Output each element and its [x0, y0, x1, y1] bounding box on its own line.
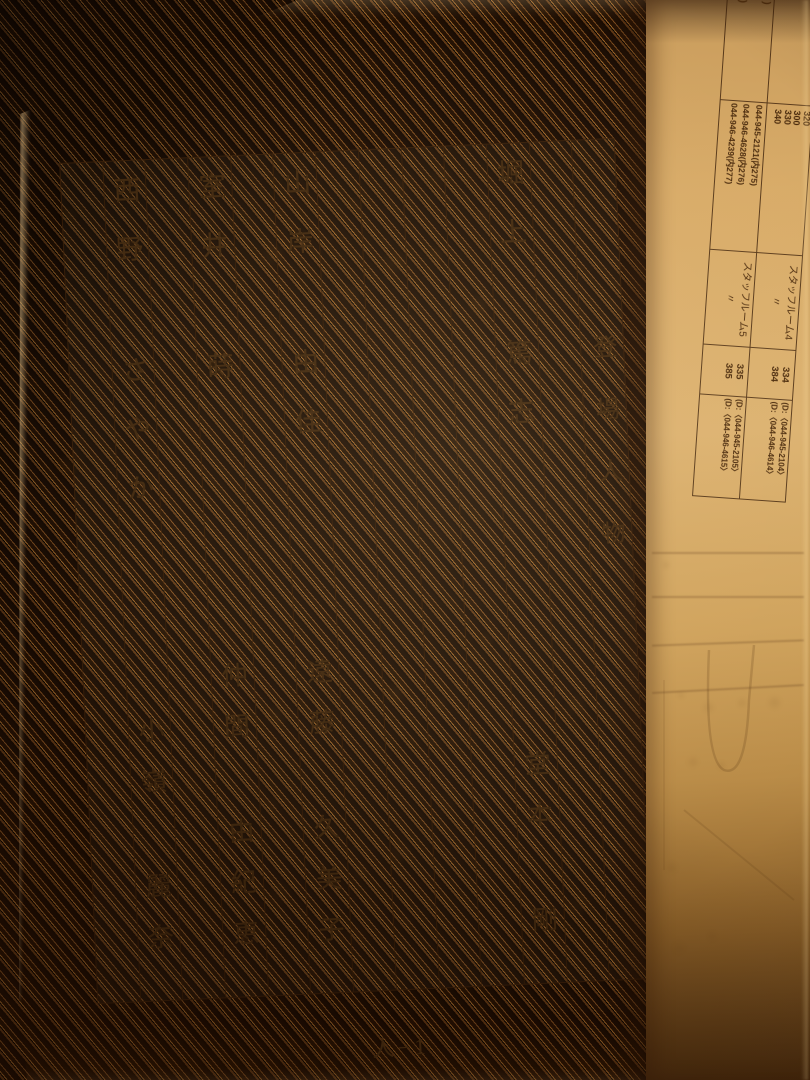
contact-sheet-page: 予備控室Bパントリー特別会議室特別控室NTV分室 320300330340 スタ… [646, 0, 810, 1080]
page-number: 人−1 [371, 1029, 430, 1064]
rotated-contact-table: 予備控室Bパントリー特別会議室特別控室NTV分室 320300330340 スタ… [692, 0, 810, 503]
ghost-showthrough [65, 852, 92, 879]
staff-extensions-cell: 334384 [747, 348, 795, 401]
photo-scene: 西野 さやか 小嶺 麗奈 室井 蒔 仲間 由紀恵 山岸 由佳 遠藤 久美子 堀上… [0, 0, 810, 1080]
ghost-showthrough [716, 760, 727, 771]
showthrough-diagram [654, 640, 804, 940]
extension-numbers-cell: 320300330340 [757, 103, 810, 256]
actor-name: 堂本 剛 [517, 749, 563, 957]
room-names-cell: 予備控室Bパントリー特別会議室特別控室NTV分室 [768, 0, 810, 107]
faint-grid-line [652, 596, 804, 598]
page-title: 登場人物 [584, 334, 630, 583]
ghost-showthrough [766, 694, 783, 711]
phone-directory-table: 予備控室Bパントリー特別会議室特別控室NTV分室 320300330340 スタ… [692, 0, 810, 503]
ghost-showthrough [661, 560, 671, 570]
staff-extensions-cell: 335385 [700, 345, 749, 398]
direct-numbers-cell: (D:〈044-945-2105〉(D:〈044-946-4615〉 [693, 394, 746, 497]
ghost-showthrough [706, 930, 719, 943]
ghost-showthrough [701, 700, 716, 715]
staff-room-cell: スタッフルーム4〃 [750, 253, 802, 351]
ghost-showthrough [671, 940, 687, 956]
staff-room-cell: スタッフルーム5〃 [704, 250, 757, 348]
ghost-showthrough [676, 690, 686, 700]
faint-grid-line [652, 552, 804, 554]
page-edge-highlight [13, 100, 30, 1000]
ghost-showthrough [664, 860, 679, 875]
ghost-showthrough [64, 710, 84, 730]
direct-numbers-cell: (D:〈044-945-2104〉(D:〈044-946-4614〉 [740, 398, 792, 501]
ghost-showthrough [736, 697, 748, 709]
cast-table: 西野 さやか 小嶺 麗奈 室井 蒔 仲間 由紀恵 山岸 由佳 遠藤 久美子 堀上… [59, 138, 653, 1004]
ghost-showthrough [686, 755, 700, 769]
